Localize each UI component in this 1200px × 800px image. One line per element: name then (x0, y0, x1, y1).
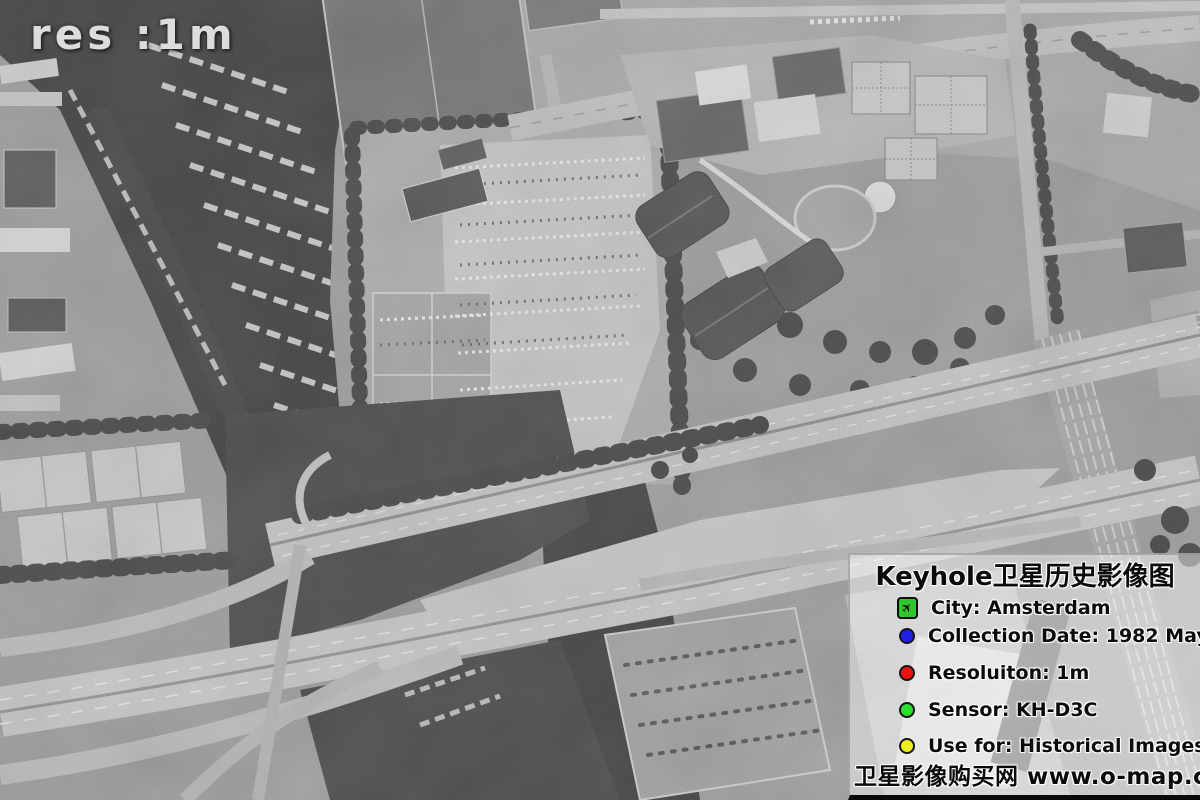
green-dot-icon (899, 702, 915, 718)
legend-label-resolution: Resoluiton: 1m (928, 662, 1089, 684)
info-panel: Keyhole卫星历史影像图 ✈ City: Amsterdam Collect… (848, 553, 1200, 800)
legend-row-city: ✈ City: Amsterdam (897, 597, 1200, 619)
legend-label-sensor: Sensor: KH-D3C (928, 699, 1098, 721)
blue-dot-icon (899, 628, 915, 644)
legend-row-date: Collection Date: 1982 May (897, 625, 1200, 647)
yellow-dot-icon (899, 738, 915, 754)
screenshot: res :1m Keyhole卫星历史影像图 ✈ City: Amsterdam… (0, 0, 1200, 800)
legend-label-date: Collection Date: 1982 May (928, 625, 1200, 647)
legend-row-resolution: Resoluiton: 1m (897, 662, 1200, 684)
red-dot-icon (899, 665, 915, 681)
airport-icon: ✈ (897, 597, 918, 619)
legend-label-use: Use for: Historical Images (928, 735, 1200, 757)
legend-label-city: City: Amsterdam (931, 597, 1111, 619)
legend: ✈ City: Amsterdam Collection Date: 1982 … (850, 597, 1200, 757)
panel-title: Keyhole卫星历史影像图 (850, 562, 1200, 592)
legend-row-use: Use for: Historical Images (897, 735, 1200, 757)
panel-footer-watermark: 卫星影像购买网 www.o-map.cn (854, 757, 1200, 791)
legend-row-sensor: Sensor: KH-D3C (897, 699, 1200, 721)
resolution-watermark: res :1m (30, 10, 237, 59)
